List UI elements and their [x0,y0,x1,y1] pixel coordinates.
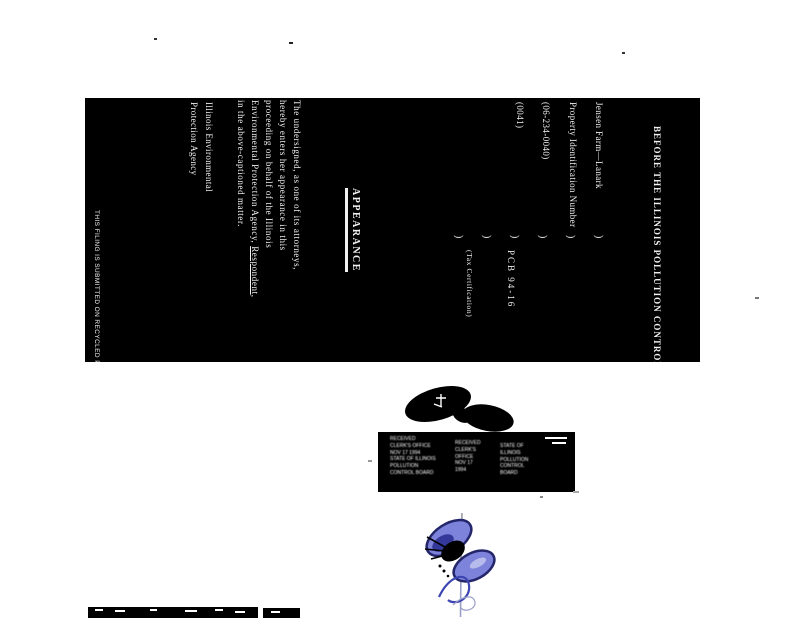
stamp-white-fleck [545,437,567,439]
document-title-row: APPEARANCE [345,98,366,362]
body-line: Environmental Protection Agency, Respond… [248,100,262,298]
caption-paren: ) [565,235,576,238]
bottom-cutoff-bar-2 [263,608,300,618]
butterfly-speck [439,565,442,568]
caption-paren: ) [593,235,604,238]
noise-speck [289,42,293,44]
signature-line-2: Protection Agency [189,102,199,176]
stamp-text-cluster-b: RECEIVED CLERK'S OFFICE NOV 17 1994 [455,440,481,474]
caption-paren: ) [481,235,492,238]
noise-speck [573,491,579,493]
caption-paren: ) [453,235,464,238]
caption-case-name: Jensen Farm—Lanark [594,102,604,189]
butterfly-speck [447,575,450,578]
noise-speck [368,460,372,462]
body-line: proceeding on behalf of the Illinois [262,100,276,298]
underlined-word: Respondent [250,246,260,295]
body-line: hereby enters her appearance in this [276,100,290,298]
caption-docket-type: (Tax Certification) [465,250,474,317]
body-paragraph: The undersigned, as one of its attorneys… [234,100,304,298]
noise-speck [154,38,157,40]
noise-speck [540,496,543,498]
received-stamp-block: RECEIVED CLERK'S OFFICE NOV 17 1994 STAT… [378,432,575,492]
stamp-text-cluster-a: RECEIVED CLERK'S OFFICE NOV 17 1994 STAT… [390,436,436,477]
caption-docket-number: PCB 94-16 [506,250,516,308]
caption-paren: ) [537,235,548,238]
stamp-white-fleck [552,442,566,444]
butterfly-graphic [415,505,515,618]
caption-property-id-number-2: (0041) [515,102,525,128]
signature-line-1: Illinois Environmental [204,102,214,192]
bottom-cutoff-bar [88,607,258,618]
stamp-text-cluster-c: STATE OF ILLINOIS POLLUTION CONTROL BOAR… [500,443,528,477]
noise-speck [755,297,759,299]
scanned-page: BEFORE THE ILLINOIS POLLUTION CONTROL BO… [0,0,800,618]
body-line: The undersigned, as one of its attorneys… [290,100,304,298]
document-title: APPEARANCE [345,188,361,272]
document-heading: BEFORE THE ILLINOIS POLLUTION CONTROL BO… [652,126,662,362]
butterfly-speck [443,570,446,573]
caption-property-id-label: Property Identification Number [568,102,578,227]
caption-paren: ) [509,235,520,238]
caption-property-id-number: (06-234-0040) [541,102,551,160]
recycled-paper-footer: THIS FILING IS SUBMITTED ON RECYCLED PAP… [93,210,100,362]
scanned-document-block: BEFORE THE ILLINOIS POLLUTION CONTROL BO… [85,98,700,362]
body-line: in the above-captioned matter. [234,100,248,298]
rotated-document-content: BEFORE THE ILLINOIS POLLUTION CONTROL BO… [85,98,700,362]
noise-speck [622,52,625,54]
